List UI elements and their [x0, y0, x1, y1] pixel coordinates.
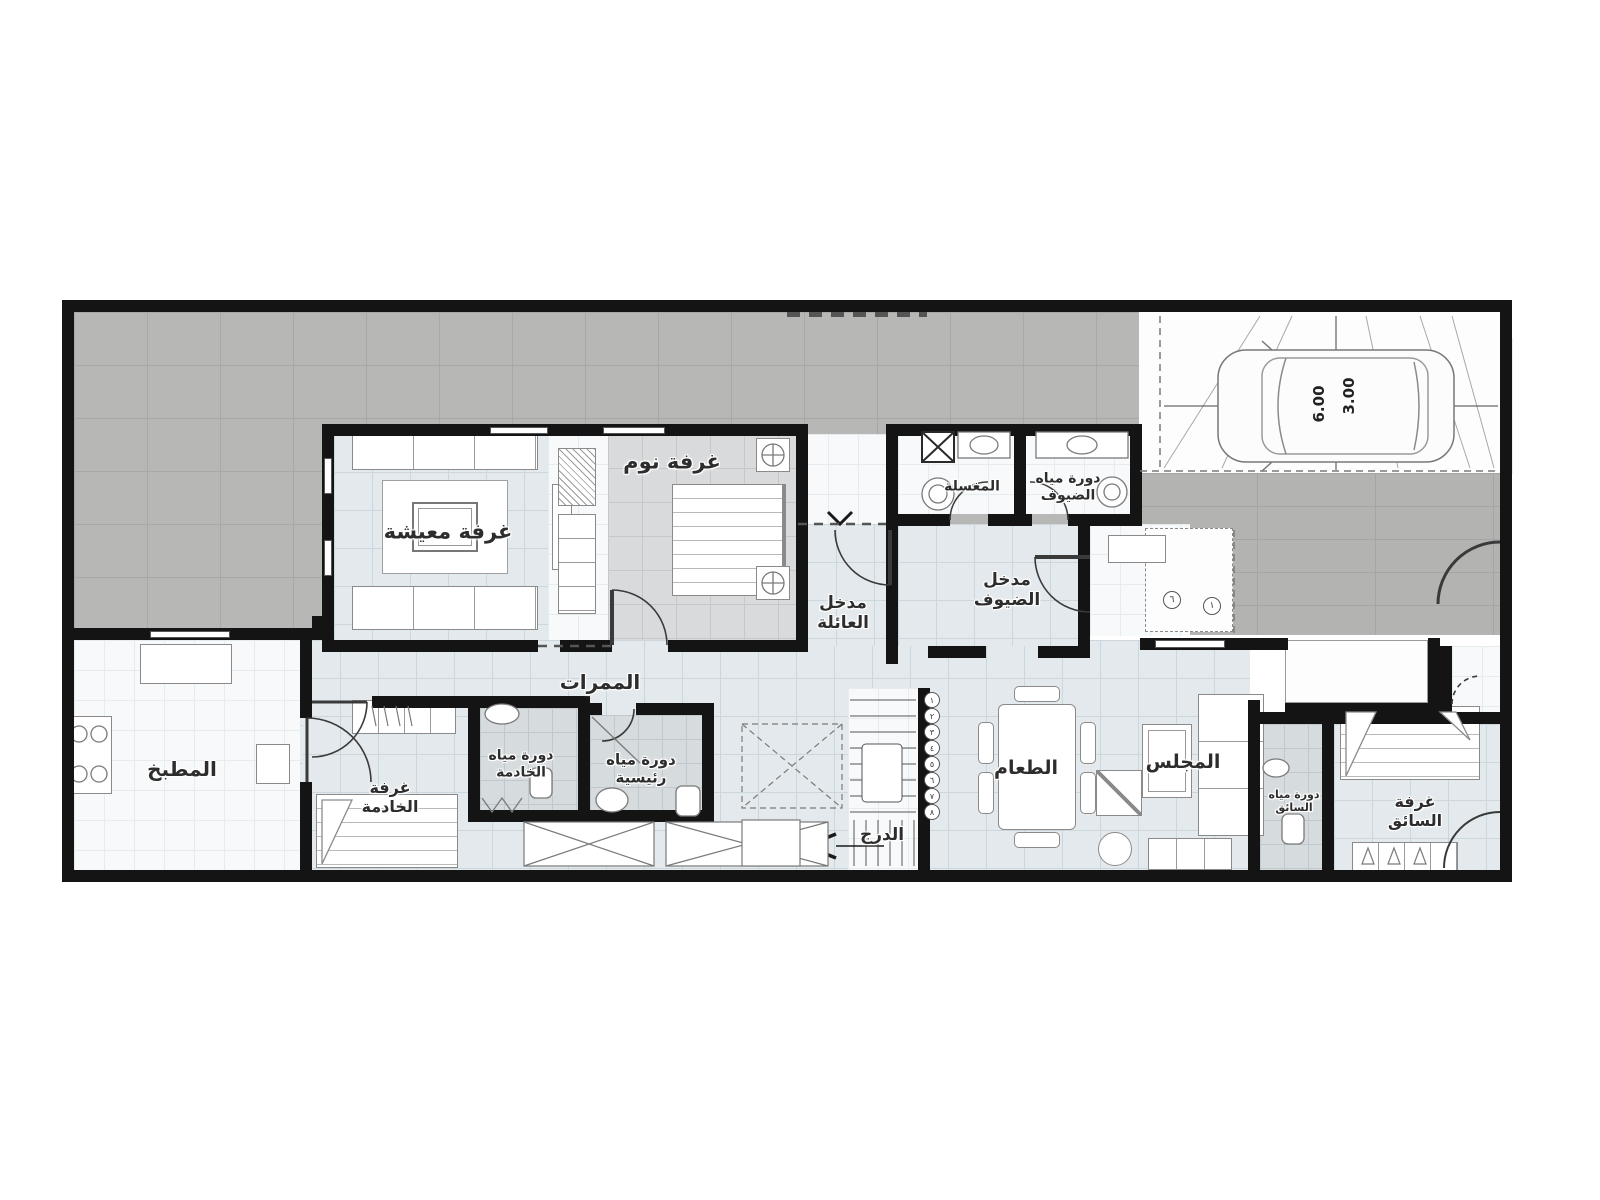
- window: [1155, 640, 1225, 648]
- wall-segment: [1014, 424, 1026, 526]
- sofa: [352, 430, 538, 470]
- sofa: [352, 586, 538, 630]
- dining-chair: [978, 772, 994, 814]
- dining-chair: [1080, 772, 1096, 814]
- wall-segment: [468, 810, 714, 822]
- stair-step-number: ٤: [924, 740, 940, 756]
- gate-leaf: [1500, 542, 1511, 604]
- driver-wardrobe: [1352, 842, 1458, 872]
- window: [150, 631, 230, 638]
- label-bedroom: غرفة نوم: [623, 450, 721, 475]
- wall-segment: [928, 646, 986, 658]
- label-guest-entrance: مدخل الضيوف: [974, 570, 1040, 610]
- wall-segment: [372, 696, 468, 708]
- stair-step-number: ٧: [924, 788, 940, 804]
- stair-step-number: ٢: [924, 708, 940, 724]
- dining-chair: [1014, 832, 1060, 848]
- label-family-entrance: مدخل العائلة: [817, 593, 869, 633]
- label-guest-wc: دورة مياه الضيوف: [1036, 470, 1101, 503]
- wardrobe-shelf: [558, 448, 596, 506]
- wall-segment: [300, 782, 312, 870]
- wall-segment: [1322, 712, 1334, 870]
- nightstand: [756, 438, 790, 472]
- window: [490, 427, 548, 434]
- parking-width-dim: 3.00: [1341, 377, 1359, 414]
- window: [603, 427, 665, 434]
- stair-step-number: ٦: [924, 772, 940, 788]
- wall-segment: [1248, 700, 1260, 870]
- wall-segment: [886, 514, 950, 526]
- wall-segment: [578, 700, 590, 822]
- stair-step-number: ٨: [924, 804, 940, 820]
- label-living-room: غرفة معيشة: [384, 520, 513, 545]
- label-maid-wc: دورة مياه الخادمة: [489, 747, 554, 780]
- driver-vestibule: [1452, 646, 1500, 712]
- gravel-strip: [1502, 338, 1513, 474]
- label-maid-room: غرفة الخادمة: [362, 779, 419, 817]
- wall-segment: [1038, 646, 1090, 658]
- nightstand: [756, 566, 790, 600]
- window: [324, 458, 332, 494]
- label-majlis: المجلس: [1146, 751, 1221, 773]
- majlis-bench: [1148, 838, 1232, 870]
- parking-length-dim: 6.00: [1311, 385, 1329, 422]
- label-driver-room: غرفة السائق: [1388, 793, 1442, 831]
- wall-segment: [312, 616, 324, 640]
- wall-segment: [796, 424, 808, 652]
- label-corridors: الممرات: [560, 671, 641, 695]
- wall-segment: [1248, 712, 1328, 724]
- window: [324, 540, 332, 576]
- wall-segment: [578, 703, 602, 715]
- label-dining: الطعام: [994, 757, 1058, 779]
- floor-plan-canvas: غرفة معيشة غرفة نوم مدخل العائلة المغسلة…: [0, 0, 1600, 1200]
- wall-segment: [322, 424, 808, 436]
- laundry-floor: [898, 434, 1014, 514]
- armchair: [1096, 770, 1142, 816]
- kitchen-sink-counter: [140, 644, 232, 684]
- window: [255, 303, 335, 310]
- wall-segment: [1130, 424, 1142, 526]
- label-stairs: الدرج: [860, 825, 904, 845]
- stove: [66, 716, 112, 794]
- wall-segment: [1428, 638, 1440, 718]
- stair-step-number: ١: [924, 692, 940, 708]
- dining-chair: [978, 722, 994, 764]
- family-porch: [798, 434, 888, 524]
- wall-segment: [1078, 524, 1090, 656]
- wall-segment: [988, 514, 1032, 526]
- keynote-marker: ٦: [1163, 591, 1181, 609]
- window: [1503, 497, 1510, 525]
- wall-segment: [668, 640, 808, 652]
- kitchen-unit: [256, 744, 290, 784]
- wall-segment: [300, 628, 312, 718]
- wall-segment: [886, 424, 898, 664]
- label-laundry: المغسلة: [944, 479, 1000, 496]
- pouf: [1098, 832, 1132, 866]
- dining-chair: [1080, 722, 1096, 764]
- wall-segment: [1334, 712, 1500, 724]
- wall-segment: [468, 696, 590, 708]
- wall-segment: [322, 640, 538, 652]
- stair-step-number: ٣: [924, 724, 940, 740]
- label-master-wc: دورة مياه رئيسية: [606, 751, 676, 786]
- dining-chair: [1014, 686, 1060, 702]
- label-driver-wc: دورة مياه السائق: [1268, 789, 1319, 815]
- door-leaf: [1500, 812, 1511, 868]
- wall-segment: [702, 703, 714, 822]
- planter-court: [1285, 640, 1428, 703]
- keynote-marker: ١: [1203, 597, 1221, 615]
- wall-segment: [1440, 646, 1452, 716]
- wall-segment: [560, 640, 612, 652]
- shelf-unit: [558, 514, 596, 614]
- wall-segment: [468, 696, 480, 822]
- stair-step-number: ٥: [924, 756, 940, 772]
- console-bench: [1108, 535, 1166, 563]
- label-kitchen: المطبخ: [147, 758, 217, 782]
